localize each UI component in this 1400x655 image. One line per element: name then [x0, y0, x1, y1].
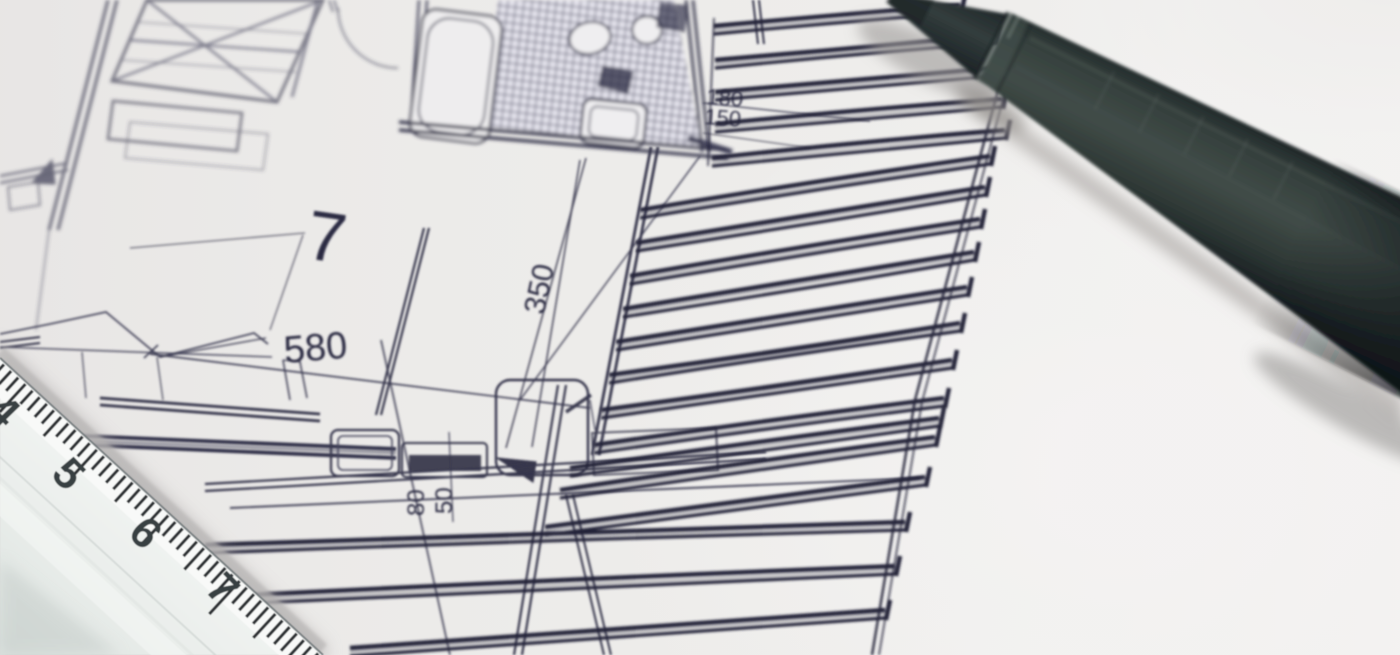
- svg-text:80: 80: [403, 489, 430, 516]
- svg-text:580: 580: [282, 325, 349, 372]
- svg-text:50: 50: [431, 487, 458, 514]
